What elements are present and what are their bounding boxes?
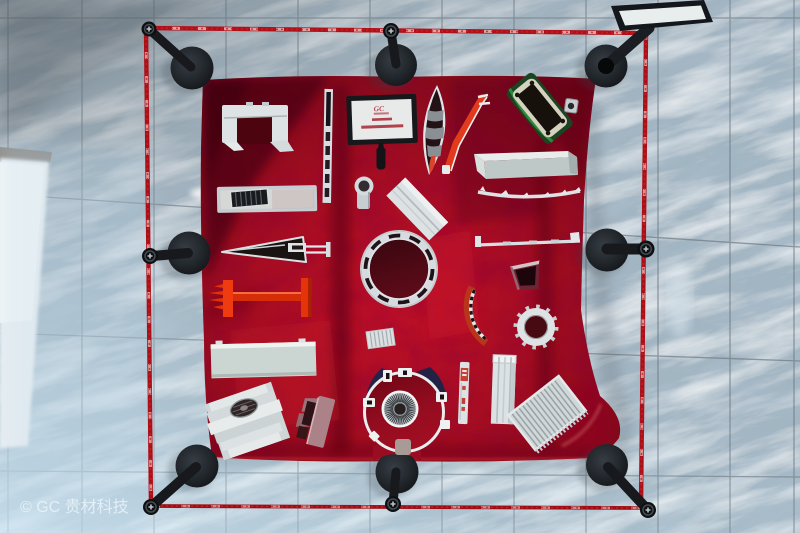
svg-text:© GC 贵材科技: © GC 贵材科技 <box>20 498 129 516</box>
svg-text:GC: GC <box>373 104 385 113</box>
